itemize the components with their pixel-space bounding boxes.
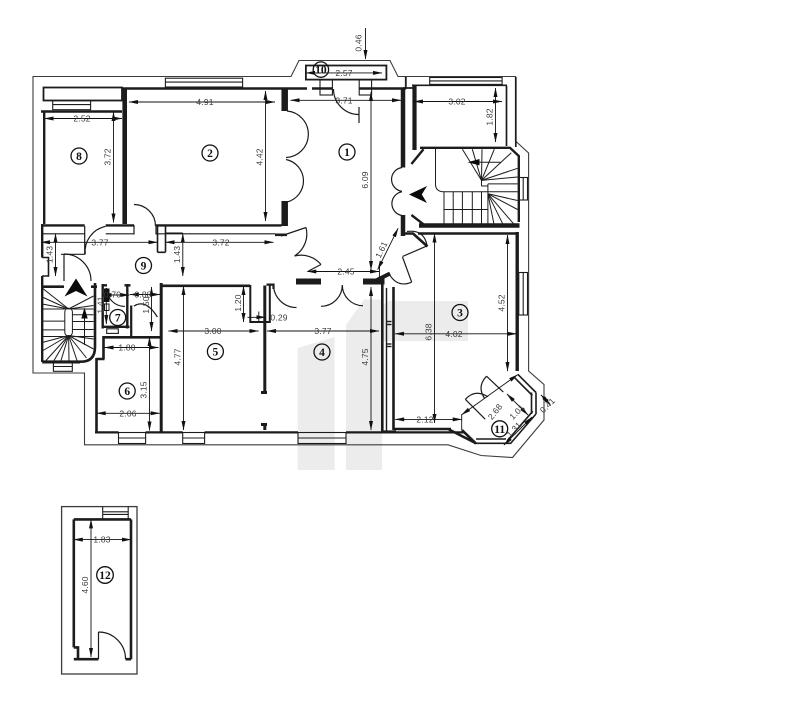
svg-text:3.00: 3.00	[204, 326, 221, 336]
svg-text:3.15: 3.15	[139, 381, 149, 398]
svg-text:2.45: 2.45	[337, 267, 354, 277]
svg-text:1.20: 1.20	[233, 294, 243, 311]
svg-text:2.52: 2.52	[73, 114, 90, 124]
svg-text:2.06: 2.06	[119, 408, 136, 418]
svg-text:1.50: 1.50	[141, 296, 151, 313]
svg-text:3.72: 3.72	[103, 148, 113, 165]
svg-text:8: 8	[76, 151, 82, 163]
svg-text:3.02: 3.02	[448, 97, 465, 107]
svg-text:4.52: 4.52	[497, 294, 507, 311]
svg-text:2.12: 2.12	[416, 414, 433, 424]
svg-text:0.46: 0.46	[354, 34, 364, 51]
svg-text:4.60: 4.60	[80, 576, 90, 593]
svg-text:4.75: 4.75	[360, 348, 370, 365]
svg-text:0.70: 0.70	[104, 290, 121, 300]
svg-text:1.01: 1.01	[507, 402, 526, 421]
svg-text:6.38: 6.38	[424, 323, 434, 340]
svg-text:2.68: 2.68	[486, 402, 505, 422]
svg-text:3.72: 3.72	[212, 237, 229, 247]
svg-text:4.42: 4.42	[255, 148, 265, 165]
svg-text:5: 5	[213, 347, 219, 359]
svg-text:3.77: 3.77	[91, 237, 108, 247]
svg-text:2: 2	[207, 148, 213, 160]
svg-text:0.41: 0.41	[538, 396, 557, 415]
svg-text:9: 9	[141, 261, 147, 273]
svg-text:1.82: 1.82	[485, 108, 495, 125]
svg-text:7: 7	[115, 313, 121, 325]
svg-text:1.43: 1.43	[172, 246, 182, 263]
svg-text:4: 4	[319, 347, 325, 359]
svg-text:3.71: 3.71	[335, 95, 352, 105]
svg-text:1.80: 1.80	[118, 343, 135, 353]
svg-text:12: 12	[99, 570, 111, 582]
svg-text:1.43: 1.43	[45, 246, 55, 263]
svg-text:6: 6	[124, 386, 130, 398]
svg-text:11: 11	[494, 424, 505, 436]
svg-text:4.77: 4.77	[173, 348, 183, 365]
svg-text:0.29: 0.29	[270, 312, 287, 322]
svg-text:1: 1	[344, 147, 350, 159]
svg-text:3.77: 3.77	[314, 326, 331, 336]
svg-text:1.83: 1.83	[93, 535, 110, 545]
svg-text:3: 3	[457, 308, 463, 320]
svg-text:6.09: 6.09	[360, 171, 370, 188]
svg-text:4.91: 4.91	[196, 97, 213, 107]
svg-text:1.41: 1.41	[96, 296, 106, 313]
svg-text:10: 10	[315, 65, 327, 77]
svg-text:4.02: 4.02	[445, 329, 462, 339]
svg-text:2.57: 2.57	[335, 68, 352, 78]
